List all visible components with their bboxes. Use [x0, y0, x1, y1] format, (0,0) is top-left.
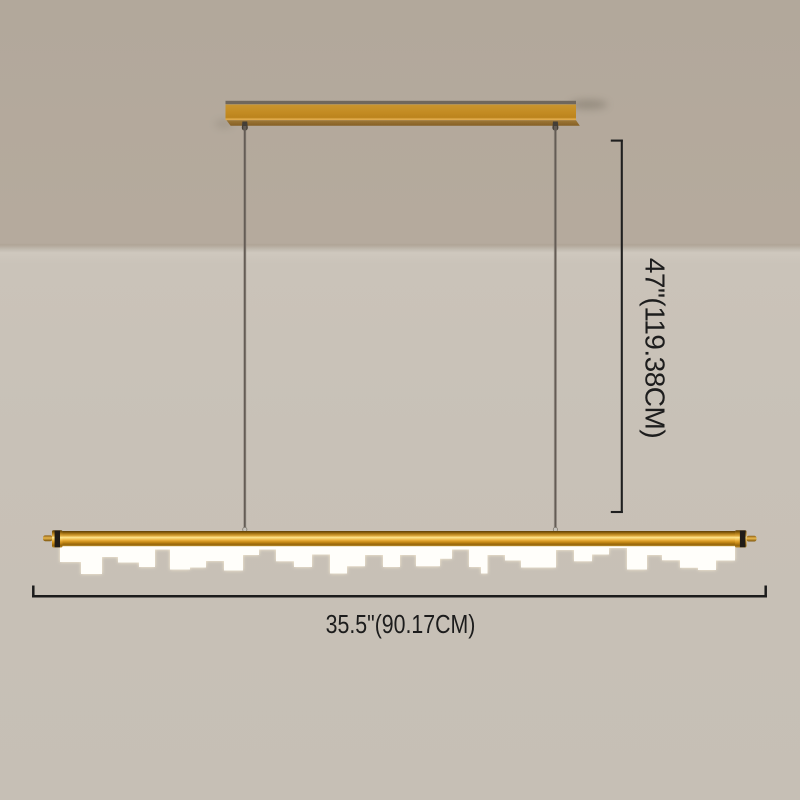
svg-text:35.5"(90.17CM): 35.5"(90.17CM) [326, 610, 476, 640]
svg-text:47"(119.38CM): 47"(119.38CM) [640, 258, 671, 438]
